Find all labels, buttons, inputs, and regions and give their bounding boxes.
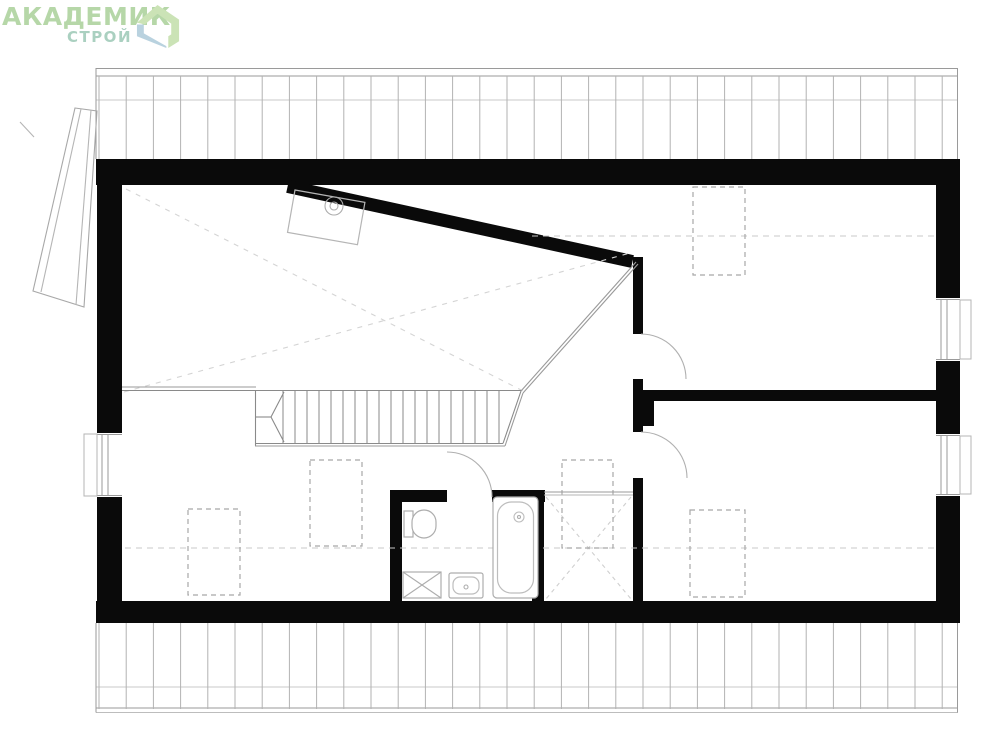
roof-window [310, 460, 362, 546]
right-wall-middle [936, 361, 960, 434]
logo-house-icon [134, 3, 183, 50]
door-arc-bathroom [447, 452, 492, 497]
roof-panel-tick [20, 122, 34, 137]
bathtub [493, 497, 538, 598]
window-right-lower-sill [960, 436, 971, 494]
roof-window [693, 187, 745, 275]
logo-subtitle: СТРОЙ [2, 28, 132, 46]
roof-window [690, 510, 745, 597]
right-wall-lower [936, 496, 960, 623]
toilet-bowl [412, 510, 436, 538]
partition-pier [643, 401, 654, 426]
logo-house-left-wall [137, 25, 166, 49]
ceiling-slope-line-b [124, 253, 630, 392]
roof-window [188, 509, 240, 595]
window-right-upper [936, 298, 960, 361]
door-arc-bedroom-right [641, 334, 686, 379]
diagonal-wall [286, 180, 634, 268]
roof-panel-line-a [41, 109, 81, 292]
left-wall-lower [97, 497, 122, 623]
roof-window [562, 460, 613, 548]
bottom-wall [96, 601, 960, 623]
chimney-flue-inner [330, 202, 338, 210]
hall-wall-lower [633, 478, 643, 602]
roof-panel [33, 108, 97, 307]
right-wall-upper [936, 185, 960, 298]
bathroom-wall-left [390, 490, 402, 602]
stairs-break-line [271, 392, 284, 442]
stairwell-void-edge-b [523, 264, 638, 393]
window-right-upper-sill [960, 300, 971, 359]
stairs-chamfer2 [505, 393, 523, 446]
left-wall-upper [97, 159, 122, 434]
logo: АКАДЕМИК СТРОЙ [2, 2, 184, 52]
roof-panel-line-b [76, 110, 91, 305]
door-arc-bedroom-lower [641, 432, 687, 478]
hall-wall-middle [633, 379, 643, 432]
window-left [97, 433, 122, 497]
stairwell-void-edge-a [521, 262, 636, 391]
partition-wall [643, 390, 936, 401]
floor-plan-drawing [0, 0, 999, 741]
window-right-lower [936, 434, 960, 496]
floor-plan-page: АКАДЕМИК СТРОЙ [0, 0, 999, 741]
top-wall [96, 159, 960, 185]
window-left-sill [84, 434, 97, 496]
stairs-chamfer [503, 391, 521, 444]
